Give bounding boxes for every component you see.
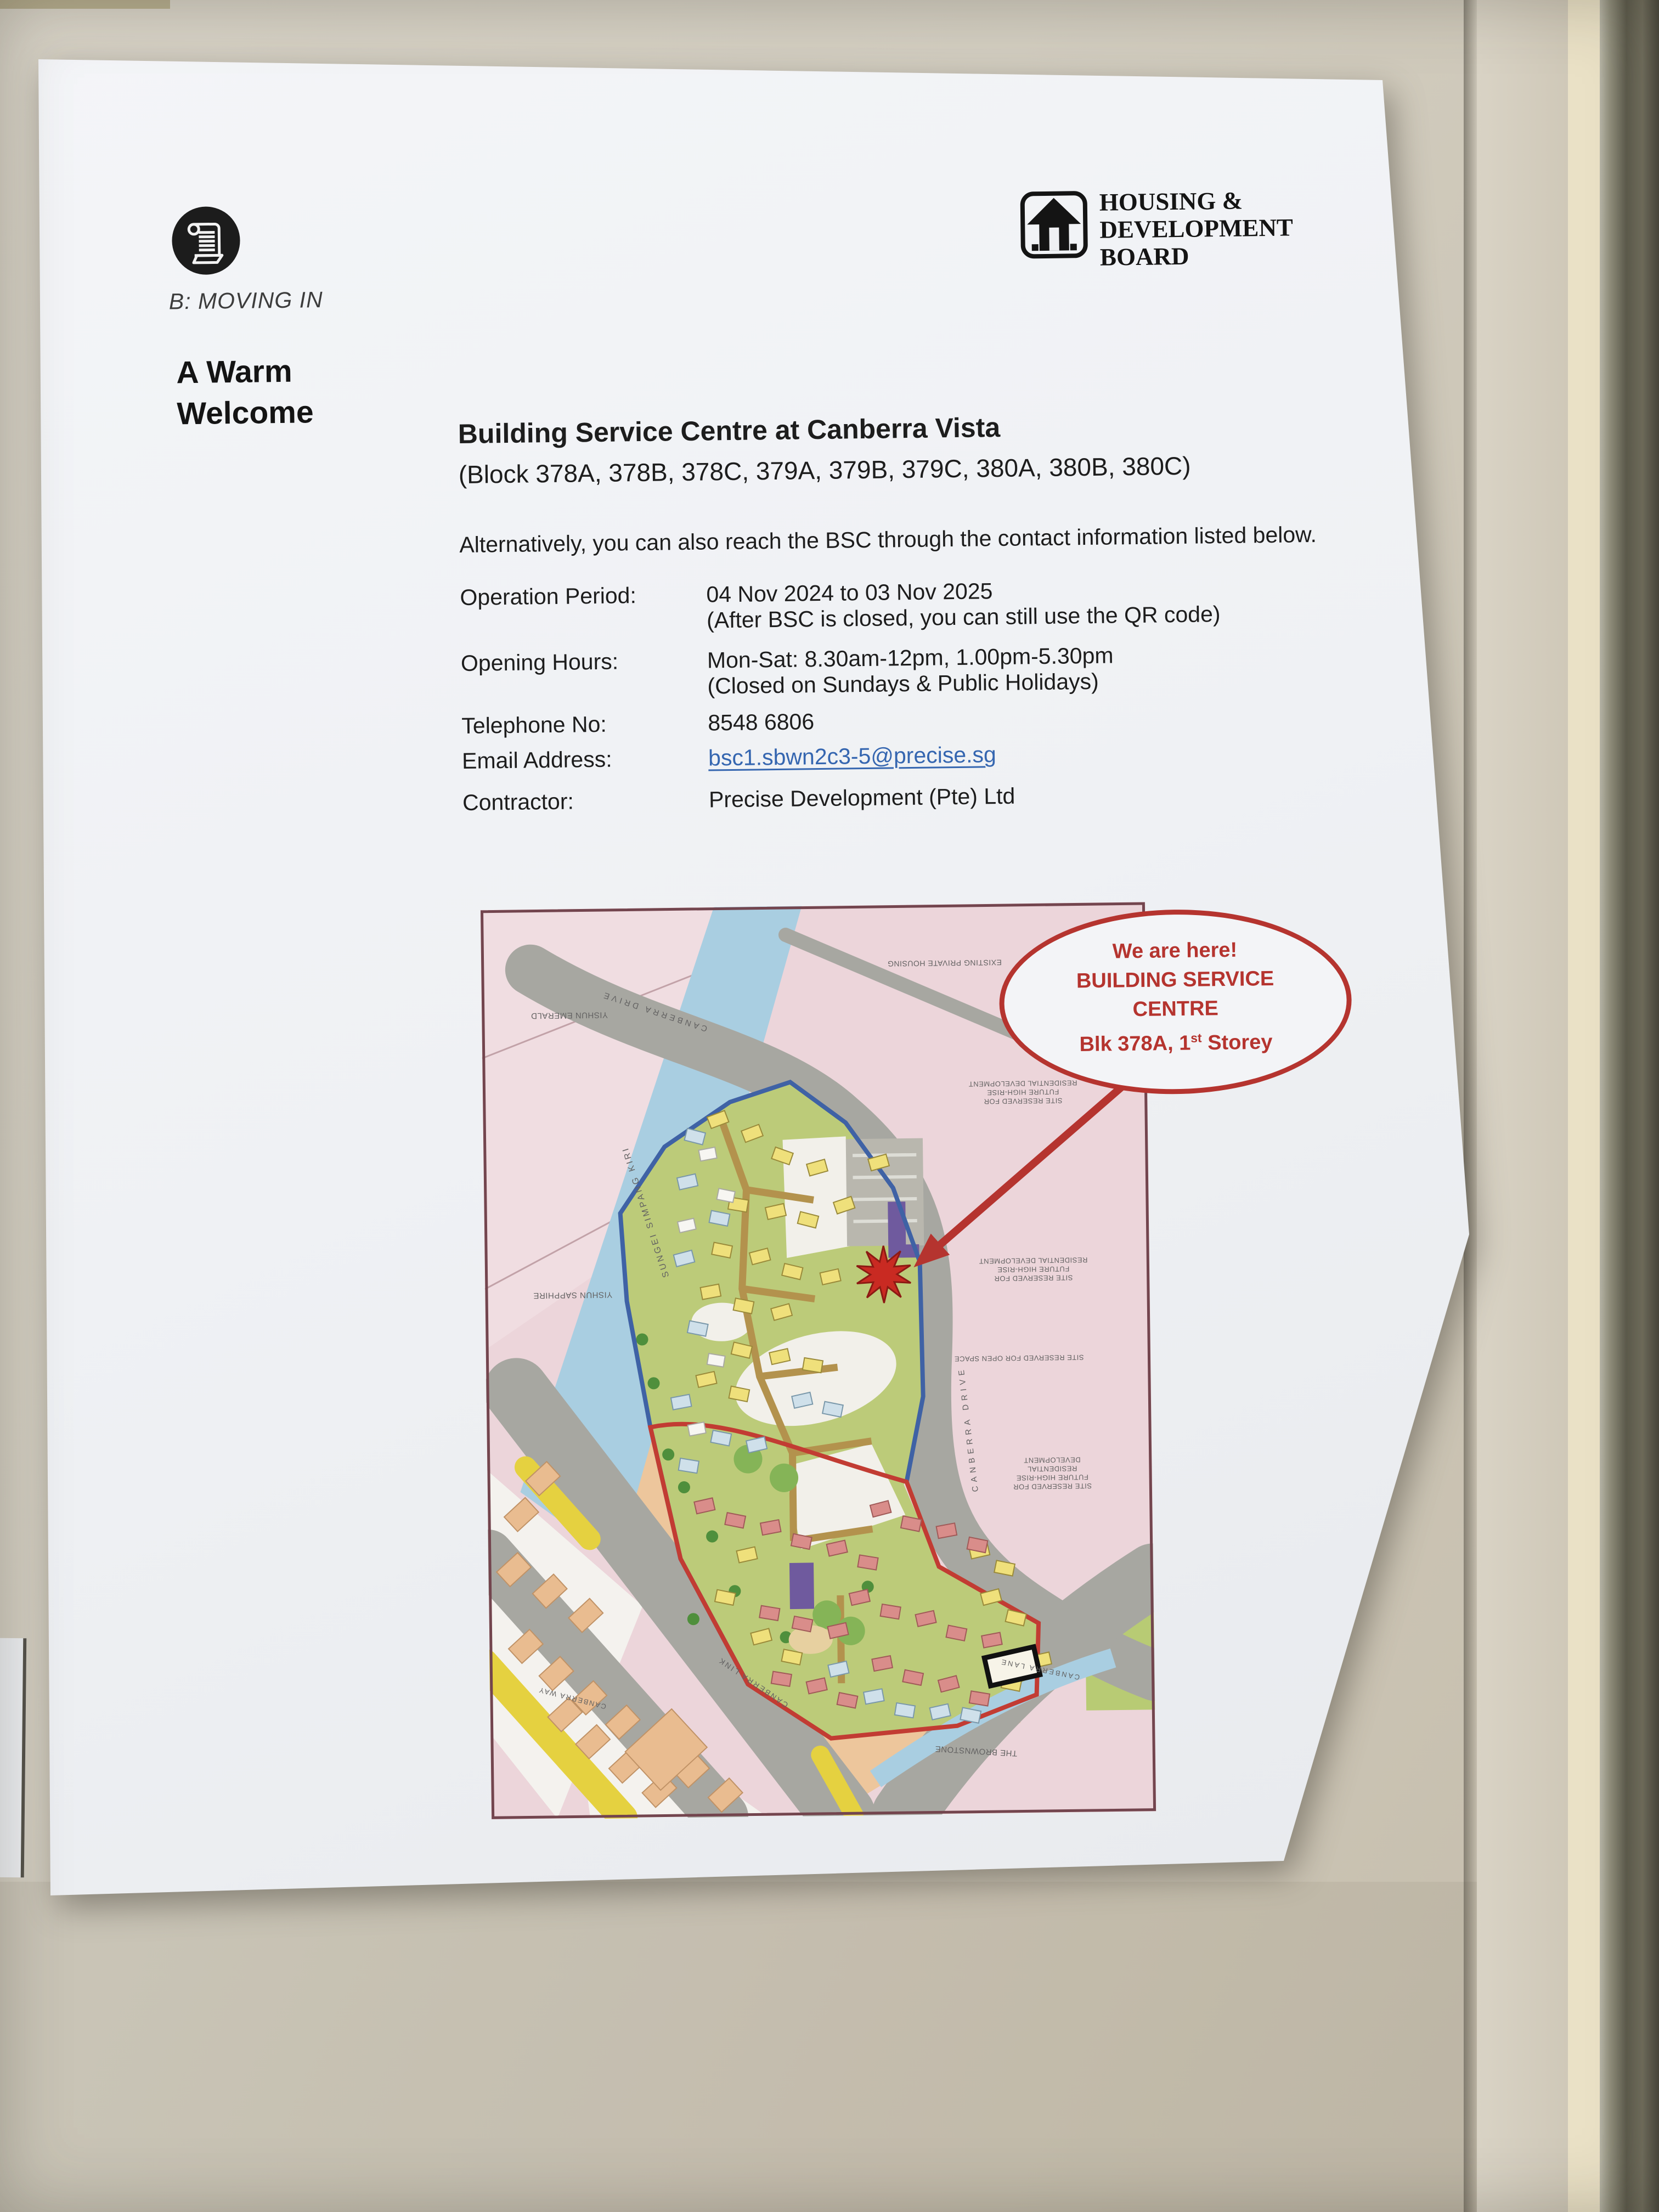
page-title: A Warm Welcome (176, 351, 314, 435)
callout-line-1: We are here! (1003, 934, 1346, 968)
notice-block-list: (Block 378A, 378B, 378C, 379A, 379B, 379… (458, 451, 1190, 489)
detail-label: Opening Hours: (461, 648, 708, 676)
detail-label: Email Address: (462, 746, 709, 774)
detail-value: Mon-Sat: 8.30am-12pm, 1.00pm-5.30pm (707, 642, 1114, 673)
detail-row-email: Email Address:bsc1.sbwn2c3-5@precise.sg (462, 742, 996, 774)
email-link[interactable]: bsc1.sbwn2c3-5@precise.sg (708, 742, 996, 770)
photo-of-notice: B: MOVING IN A Warm Welcome HOUSING & DE… (0, 0, 1659, 2212)
detail-note: (After BSC is closed, you can still use … (707, 601, 1221, 633)
detail-label: Telephone No: (461, 710, 708, 739)
section-label: B: MOVING IN (169, 287, 323, 314)
callout-line-4: Blk 378A, 1st Storey (1005, 1022, 1347, 1060)
callout-line-3: CENTRE (1004, 992, 1347, 1026)
contact-details: Operation Period:04 Nov 2024 to 03 Nov 2… (460, 570, 1316, 580)
hdb-text-line-2: DEVELOPMENT (1099, 213, 1293, 243)
hdb-logo-icon (1019, 188, 1089, 261)
scroll-icon (171, 206, 241, 276)
welcome-line-1: A Warm (176, 351, 313, 393)
map-label-open-space: SITE RESERVED FOR OPEN SPACE (954, 1353, 1084, 1364)
detail-value: 04 Nov 2024 to 03 Nov 2025 (706, 578, 993, 607)
detail-label: Operation Period: (460, 582, 707, 611)
map-label-yishun-emerald: YISHUN EMERALD (531, 1010, 608, 1020)
detail-row-opening-hours: Opening Hours:Mon-Sat: 8.30am-12pm, 1.00… (461, 642, 1114, 702)
notice-content: B: MOVING IN A Warm Welcome HOUSING & DE… (0, 0, 1659, 2212)
notice-title: Building Service Centre at Canberra Vist… (458, 411, 1000, 450)
hdb-text-line-3: BOARD (1100, 241, 1294, 270)
map-label-site-reserved-3: SITE RESERVED FOR FUTURE HIGH-RISE RESID… (1002, 1455, 1103, 1491)
map-label-yishun-sapphire: YISHUN SAPPHIRE (533, 1290, 612, 1300)
hdb-text-line-1: HOUSING & (1099, 186, 1293, 216)
welcome-line-2: Welcome (177, 392, 314, 435)
detail-row-contractor: Contractor:Precise Development (Pte) Ltd (462, 783, 1015, 816)
callout-line-2: BUILDING SERVICE (1004, 963, 1347, 997)
notice-intro: Alternatively, you can also reach the BS… (459, 522, 1317, 558)
map-label-existing-private-housing: EXISTING PRIVATE HOUSING (887, 958, 1001, 969)
detail-label: Contractor: (462, 787, 709, 816)
hdb-logo-text: HOUSING & DEVELOPMENT BOARD (1099, 186, 1293, 270)
detail-note: (Closed on Sundays & Public Holidays) (707, 668, 1114, 699)
detail-value: 8548 6806 (708, 709, 814, 735)
detail-row-operation-period: Operation Period:04 Nov 2024 to 03 Nov 2… (460, 575, 1221, 636)
detail-value: Precise Development (Pte) Ltd (709, 783, 1015, 812)
detail-row-telephone: Telephone No:8548 6806 (461, 709, 814, 739)
